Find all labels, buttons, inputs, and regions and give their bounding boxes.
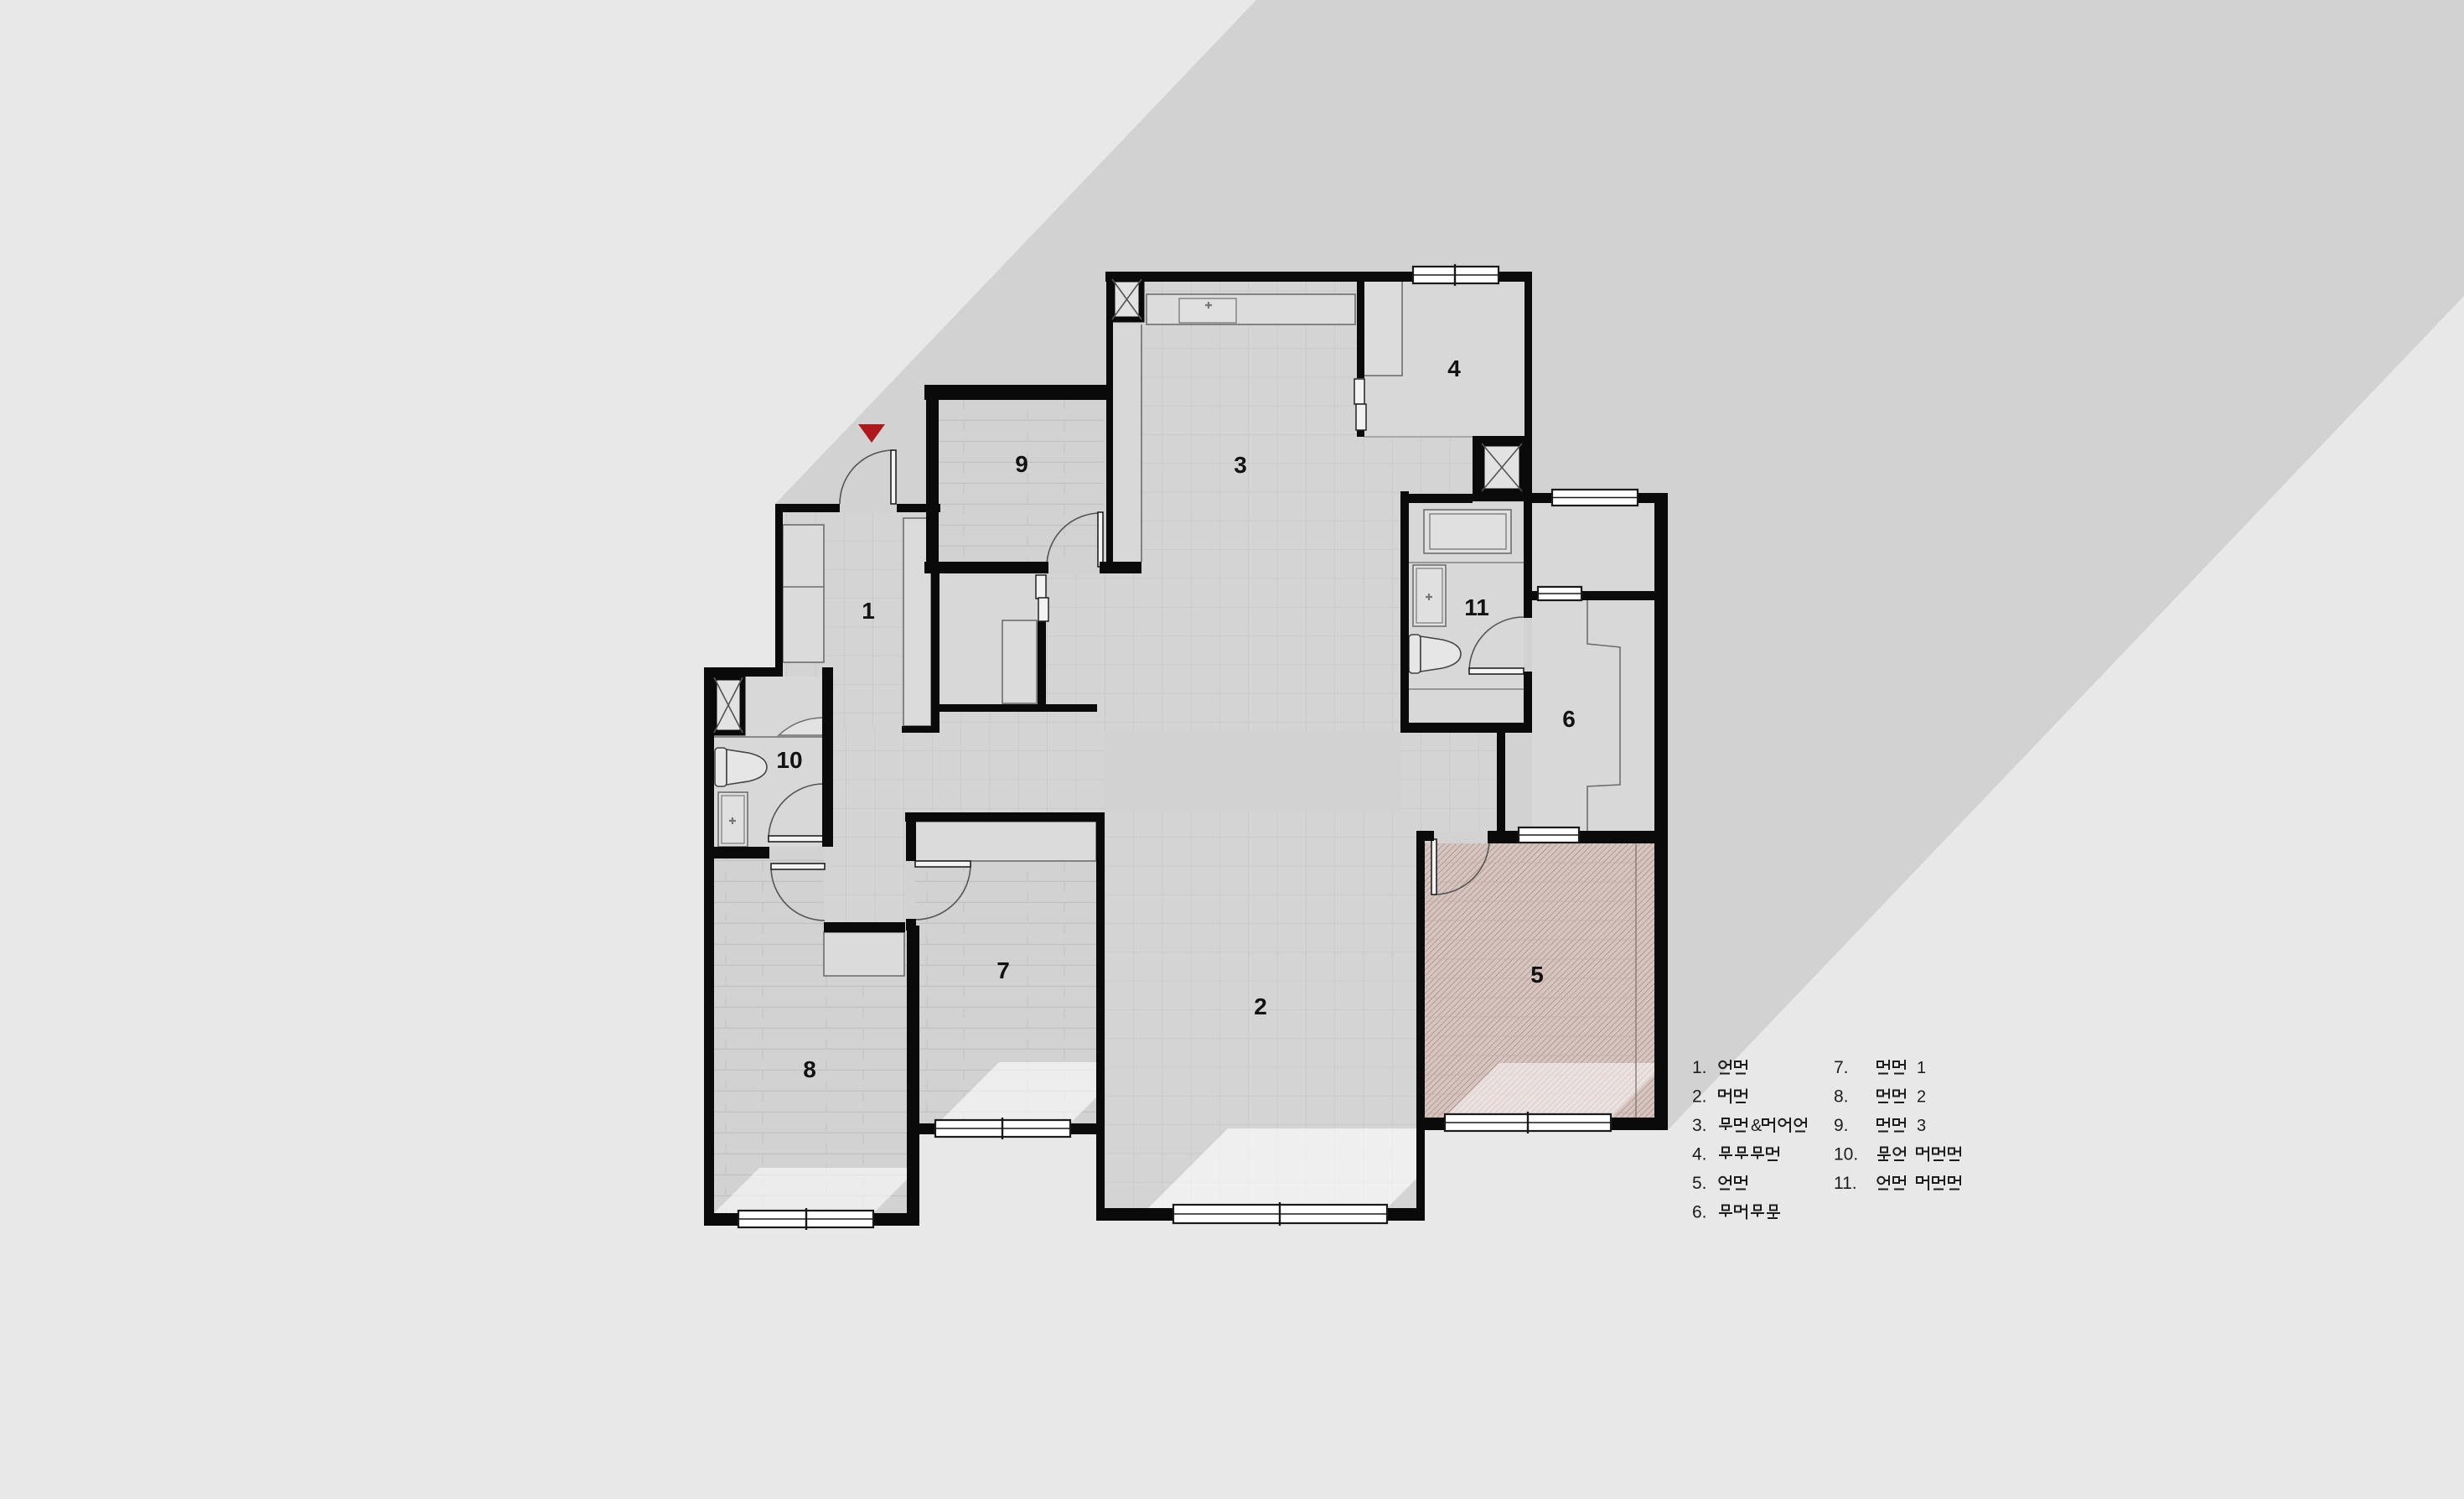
svg-text:1: 1	[862, 598, 875, 624]
svg-text:3: 3	[1234, 452, 1247, 478]
svg-text:2: 2	[1254, 993, 1267, 1019]
svg-text:✚: ✚	[1204, 301, 1212, 311]
svg-text:10: 10	[776, 747, 802, 773]
svg-text:✚: ✚	[1425, 593, 1432, 603]
svg-text:3.: 3.	[1692, 1116, 1707, 1135]
svg-text:9.: 9.	[1834, 1116, 1849, 1135]
svg-text:8.: 8.	[1834, 1087, 1849, 1107]
svg-text:1: 1	[1917, 1059, 1926, 1077]
svg-text:9: 9	[1015, 451, 1028, 477]
svg-text:5.: 5.	[1692, 1174, 1707, 1193]
svg-text:✚: ✚	[728, 817, 736, 827]
svg-text:11.: 11.	[1834, 1174, 1857, 1193]
svg-text:4.: 4.	[1692, 1145, 1707, 1164]
svg-text:8: 8	[803, 1056, 816, 1082]
svg-text:11: 11	[1464, 594, 1489, 620]
svg-text:4: 4	[1447, 355, 1461, 381]
svg-text:2.: 2.	[1692, 1087, 1707, 1107]
svg-text:7: 7	[996, 957, 1010, 983]
svg-text:3: 3	[1917, 1117, 1926, 1135]
svg-text:2: 2	[1917, 1088, 1926, 1107]
svg-text:5: 5	[1530, 962, 1544, 988]
svg-text:&: &	[1751, 1117, 1763, 1135]
svg-text:6: 6	[1562, 706, 1576, 732]
svg-text:6.: 6.	[1692, 1203, 1707, 1222]
svg-text:1.: 1.	[1692, 1058, 1707, 1077]
svg-text:10.: 10.	[1834, 1145, 1858, 1164]
svg-text:7.: 7.	[1834, 1058, 1849, 1077]
